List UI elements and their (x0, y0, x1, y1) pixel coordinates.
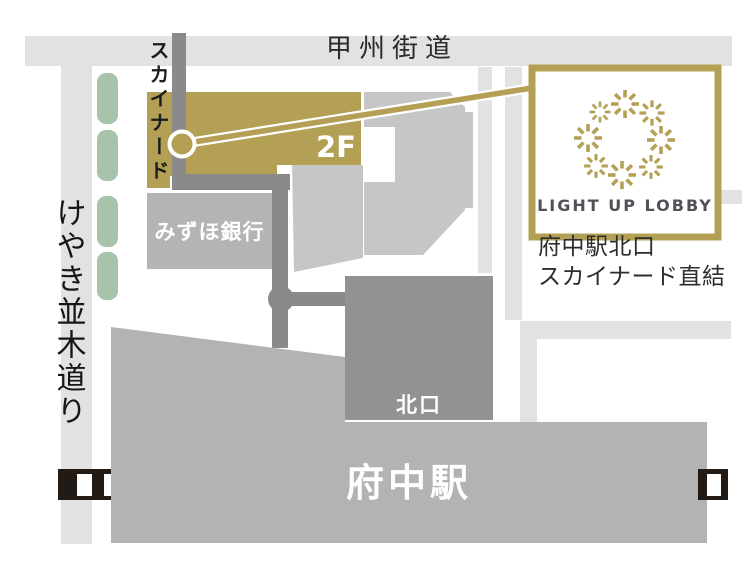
tree-row-dash (97, 73, 118, 124)
path-vertical-mid (272, 174, 288, 304)
road-keyaki-namiki (61, 36, 92, 544)
location-marker (170, 132, 195, 157)
railway-crossing-right-gap (707, 474, 721, 496)
railway-crossing-left-gap (104, 474, 112, 496)
path-vertical-north (172, 33, 186, 190)
tree-row-dash (97, 130, 118, 181)
road-station-approach (520, 339, 537, 422)
building-north-exit (345, 276, 493, 420)
road-koshu-kaido (25, 36, 732, 66)
tree-row-dash (97, 196, 118, 247)
building-block-a (292, 165, 363, 272)
building-mizuho-bank (147, 193, 272, 269)
railway-crossing-left-gap (77, 474, 92, 496)
path-junction-node (268, 286, 294, 312)
building-block-b-notch (364, 127, 395, 182)
access-map: 甲州街道 スカイナード けやき並木道り みずほ銀行 2F 北口 府中駅 LIGH… (0, 0, 750, 574)
road-horizontal-east (520, 321, 731, 339)
road-vertical-east (505, 67, 522, 320)
tree-row-dash (97, 252, 118, 300)
road-stub-right (718, 190, 742, 204)
access-map-canvas (0, 0, 750, 574)
